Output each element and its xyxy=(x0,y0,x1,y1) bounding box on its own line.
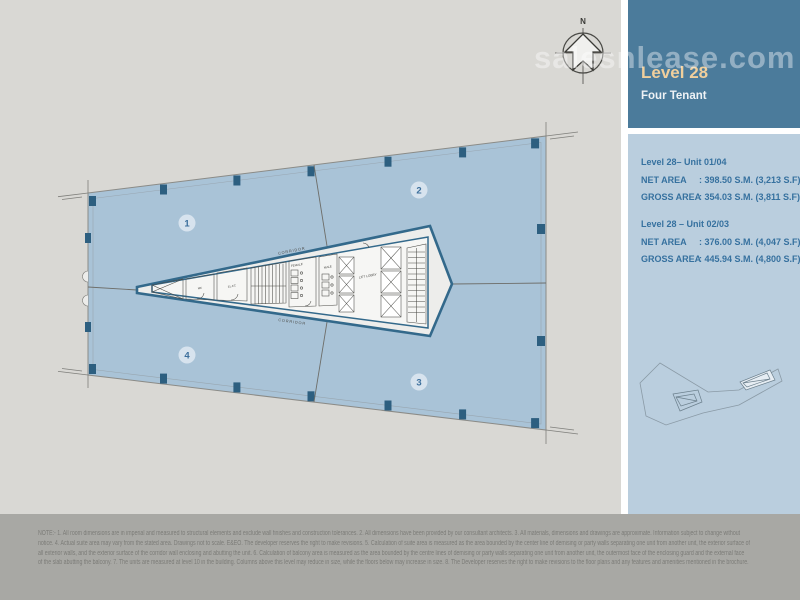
gross-area-value: : 445.94 S.M. (4,800 S.F) xyxy=(699,254,800,264)
sidebar-header: Level 28 Four Tenant xyxy=(628,0,800,128)
facade-bumps xyxy=(83,271,89,306)
unit-info-block-1: Level 28– Unit 01/04 NET AREA: 398.50 S.… xyxy=(641,134,800,202)
key-plan-building-right xyxy=(740,370,775,390)
gross-area-label: GROSS AREA xyxy=(641,192,699,202)
net-area-label: NET AREA xyxy=(641,175,699,185)
compass-icon: N xyxy=(555,17,611,84)
compass-north-label: N xyxy=(580,17,586,26)
net-area-row: NET AREA: 376.00 S.M. (4,047 S.F) xyxy=(641,237,800,247)
gross-area-row: GROSS AREA: 354.03 S.M. (3,811 S.F) xyxy=(641,192,800,202)
footer-note-bar: NOTE:- 1. All room dimensions are in imp… xyxy=(0,514,800,600)
floor-plan-area: CORRIDOR CORRIDOR ME EL.EC FEMALE MALE L… xyxy=(0,0,621,514)
net-area-row: NET AREA: 398.50 S.M. (3,213 S.F) xyxy=(641,175,800,185)
page-title: Level 28 xyxy=(641,63,708,83)
note-line-3: all exterior walls, and the exterior sur… xyxy=(38,549,750,559)
unit-2-badge: 2 xyxy=(416,186,421,197)
sidebar-info-panel: Level 28– Unit 01/04 NET AREA: 398.50 S.… xyxy=(628,134,800,514)
unit-4-badge: 4 xyxy=(184,351,190,362)
net-area-value: : 398.50 S.M. (3,213 S.F) xyxy=(699,175,800,185)
unit-1-badge: 1 xyxy=(184,219,190,230)
gross-area-row: GROSS AREA: 445.94 S.M. (4,800 S.F) xyxy=(641,254,800,264)
key-plan xyxy=(636,356,792,434)
unit-3-badge: 3 xyxy=(416,378,421,389)
unit-title: Level 28– Unit 01/04 xyxy=(641,157,800,167)
key-plan-building-left xyxy=(673,390,702,411)
gross-area-value: : 354.03 S.M. (3,811 S.F) xyxy=(699,192,800,202)
note-line-4: of the slab abutting the balcony. 7. The… xyxy=(38,558,750,568)
floor-plan: CORRIDOR CORRIDOR ME EL.EC FEMALE MALE L… xyxy=(0,0,621,514)
net-area-label: NET AREA xyxy=(641,237,699,247)
gutter-divider xyxy=(621,0,628,514)
unit-title: Level 28 – Unit 02/03 xyxy=(641,219,800,229)
room-me-label: ME xyxy=(197,286,202,291)
note-line-1: NOTE:- 1. All room dimensions are in imp… xyxy=(38,529,750,539)
gross-area-label: GROSS AREA xyxy=(641,254,699,264)
note-line-2: notice. 4. Actual suite area may vary fr… xyxy=(38,539,750,549)
unit-info-block-2: Level 28 – Unit 02/03 NET AREA: 376.00 S… xyxy=(641,202,800,264)
net-area-value: : 376.00 S.M. (4,047 S.F) xyxy=(699,237,800,247)
page-subtitle: Four Tenant xyxy=(641,90,707,102)
disclaimer-notes: NOTE:- 1. All room dimensions are in imp… xyxy=(38,529,800,568)
brochure-page: CORRIDOR CORRIDOR ME EL.EC FEMALE MALE L… xyxy=(0,0,800,600)
